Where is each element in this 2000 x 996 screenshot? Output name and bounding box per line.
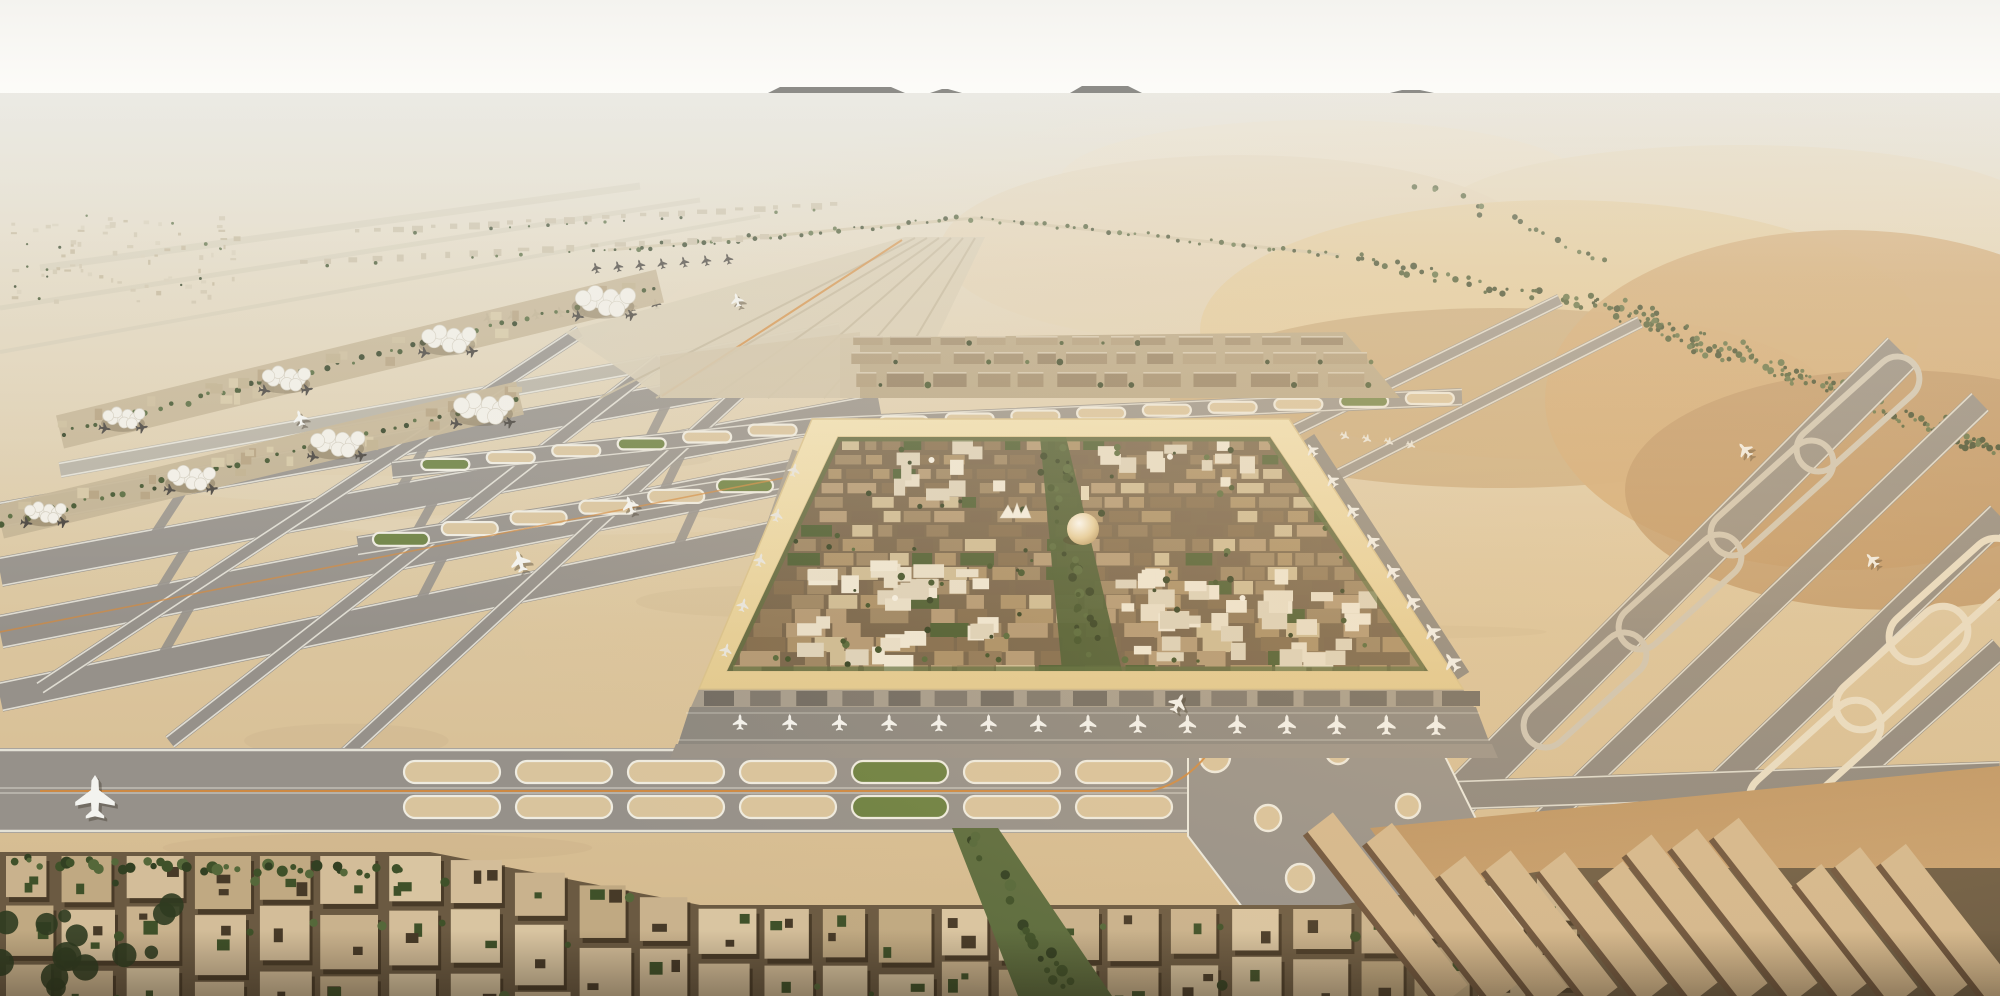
- warm-light-overlay: [0, 93, 2000, 996]
- render-canvas: [0, 0, 2000, 996]
- aerial-airport-render: [0, 0, 2000, 996]
